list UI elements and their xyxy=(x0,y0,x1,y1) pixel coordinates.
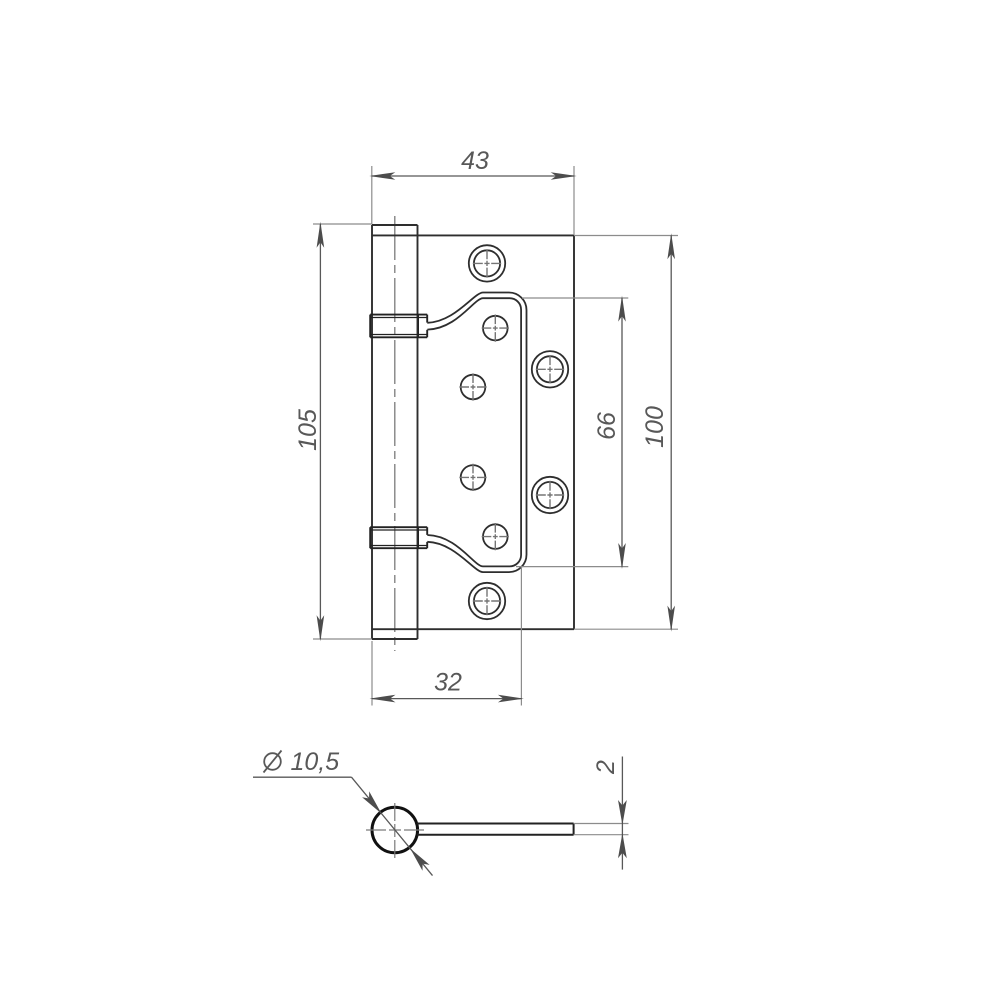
svg-text:100: 100 xyxy=(641,406,669,448)
svg-text:66: 66 xyxy=(593,412,621,440)
svg-text:105: 105 xyxy=(294,409,322,451)
svg-text:10,5: 10,5 xyxy=(291,748,340,776)
svg-text:43: 43 xyxy=(461,147,489,175)
svg-text:32: 32 xyxy=(434,669,462,697)
svg-text:2: 2 xyxy=(592,760,620,775)
